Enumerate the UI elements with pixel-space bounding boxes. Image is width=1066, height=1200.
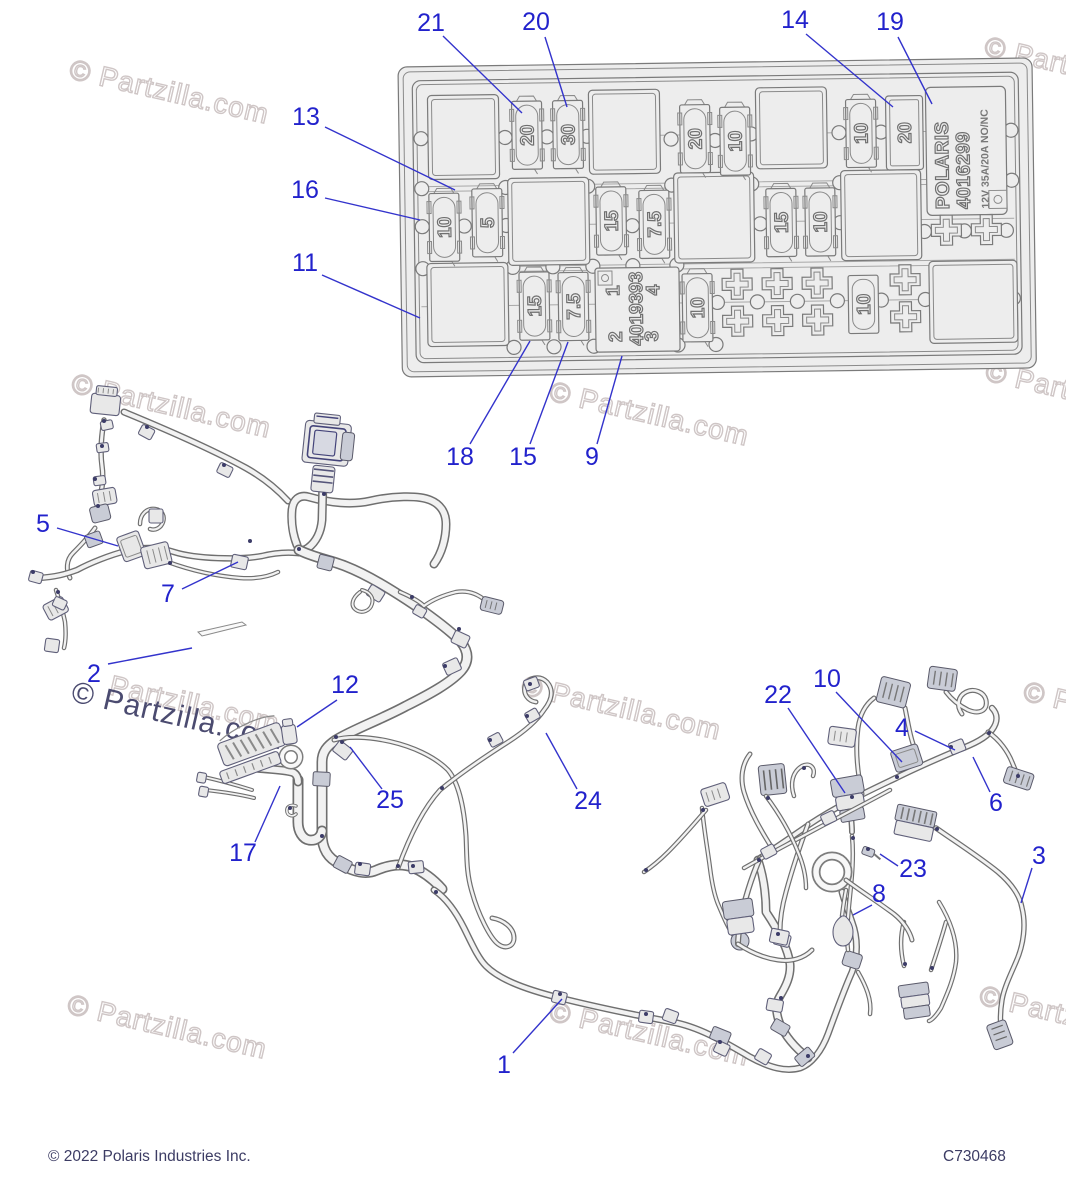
svg-text:12: 12 — [331, 671, 359, 699]
svg-text:15: 15 — [509, 443, 537, 471]
svg-text:14: 14 — [781, 6, 809, 34]
svg-text:10: 10 — [813, 665, 841, 693]
svg-text:11: 11 — [292, 249, 318, 277]
svg-text:19: 19 — [876, 8, 904, 36]
svg-text:2: 2 — [606, 331, 627, 342]
svg-text:10: 10 — [688, 297, 709, 318]
svg-text:5: 5 — [478, 217, 499, 228]
svg-text:17: 17 — [229, 839, 257, 867]
svg-text:3: 3 — [1032, 842, 1046, 870]
svg-text:© Partzilla.com: © Partzilla.com — [67, 54, 272, 130]
svg-text:13: 13 — [292, 103, 320, 131]
svg-text:10: 10 — [851, 123, 872, 144]
svg-text:1: 1 — [603, 285, 624, 296]
svg-text:7: 7 — [161, 580, 175, 608]
svg-text:20: 20 — [895, 122, 916, 143]
svg-text:24: 24 — [574, 787, 602, 815]
svg-text:4: 4 — [643, 284, 664, 295]
svg-text:© Partzilla.com: © Partzilla.com — [65, 989, 270, 1065]
svg-text:10: 10 — [725, 130, 746, 151]
svg-text:© 2022 Polaris Industries Inc.: © 2022 Polaris Industries Inc. — [48, 1148, 251, 1165]
svg-text:20: 20 — [517, 124, 538, 145]
svg-text:10: 10 — [811, 211, 832, 232]
svg-text:23: 23 — [899, 855, 927, 883]
svg-text:5: 5 — [36, 510, 50, 538]
svg-text:10: 10 — [854, 294, 875, 315]
svg-text:© Partzilla.com: © Partzilla.com — [1021, 676, 1066, 752]
svg-text:22: 22 — [764, 681, 792, 709]
svg-text:20: 20 — [522, 8, 550, 36]
svg-text:10: 10 — [435, 217, 456, 238]
svg-text:21: 21 — [417, 9, 445, 37]
svg-text:C730468: C730468 — [943, 1148, 1006, 1165]
svg-text:25: 25 — [376, 786, 404, 814]
svg-text:30: 30 — [558, 124, 579, 145]
svg-text:9: 9 — [585, 443, 599, 471]
svg-text:1: 1 — [497, 1051, 511, 1079]
svg-text:18: 18 — [446, 443, 474, 471]
svg-text:6: 6 — [989, 789, 1003, 817]
svg-text:7.5: 7.5 — [564, 293, 585, 320]
svg-text:20: 20 — [685, 128, 706, 149]
svg-text:15: 15 — [602, 210, 623, 232]
svg-text:POLARIS: POLARIS — [932, 121, 954, 209]
svg-text:3: 3 — [642, 331, 663, 342]
svg-text:2: 2 — [87, 660, 101, 688]
svg-text:7.5: 7.5 — [645, 211, 666, 238]
svg-text:16: 16 — [291, 176, 319, 204]
svg-text:12V 35A/20A NO/NC: 12V 35A/20A NO/NC — [979, 109, 992, 209]
svg-text:© Partzilla.com: © Partzilla.com — [977, 980, 1066, 1056]
svg-text:4016299: 4016299 — [953, 131, 975, 209]
svg-text:4: 4 — [895, 714, 909, 742]
svg-text:© Partzilla.com: © Partzilla.com — [547, 376, 752, 452]
svg-text:15: 15 — [772, 211, 793, 233]
svg-text:15: 15 — [525, 295, 546, 317]
svg-text:8: 8 — [872, 880, 886, 908]
